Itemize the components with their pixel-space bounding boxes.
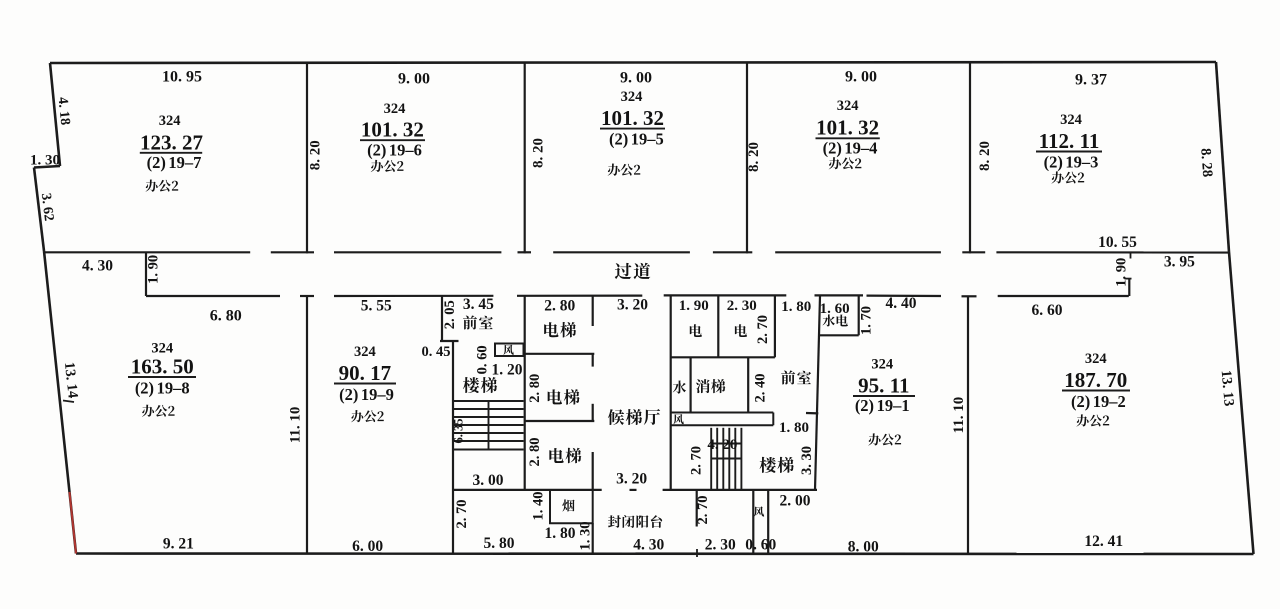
svg-text:9. 37: 9. 37 [1075,71,1107,88]
svg-text:2. 70: 2. 70 [755,315,771,344]
svg-text:324: 324 [621,89,643,105]
svg-text:3. 30: 3. 30 [799,446,815,475]
svg-text:(2)19–1: (2)19–1 [855,396,910,415]
svg-text:2. 80: 2. 80 [544,298,575,315]
svg-text:1. 20: 1. 20 [492,362,523,379]
svg-text:1. 70: 1. 70 [859,306,875,335]
svg-text:9. 00: 9. 00 [620,69,652,86]
svg-text:2. 40: 2. 40 [752,374,768,403]
svg-text:2. 70: 2. 70 [689,446,705,475]
svg-text:(2)19–7: (2)19–7 [147,153,202,172]
svg-text:90. 17: 90. 17 [339,361,392,385]
svg-text:1. 80: 1. 80 [779,420,809,436]
svg-text:9. 00: 9. 00 [398,70,430,87]
svg-text:324: 324 [159,113,181,129]
svg-text:11. 10: 11. 10 [288,407,304,444]
svg-text:13. 13: 13. 13 [1218,369,1237,407]
svg-text:4. 30: 4. 30 [82,258,113,275]
svg-text:10. 55: 10. 55 [1098,234,1137,251]
svg-text:8. 20: 8. 20 [308,140,324,170]
svg-text:(2)19–4: (2)19–4 [823,138,878,157]
svg-text:6. 80: 6. 80 [210,308,242,325]
svg-text:(2)19–3: (2)19–3 [1044,152,1099,171]
svg-text:1. 80: 1. 80 [545,525,576,542]
svg-text:324: 324 [354,344,376,360]
svg-text:101. 32: 101. 32 [816,116,879,140]
svg-text:1. 60: 1. 60 [820,301,850,317]
svg-text:1. 90: 1. 90 [145,255,161,284]
svg-text:4. 40: 4. 40 [886,295,917,312]
svg-text:8. 20: 8. 20 [531,138,547,168]
svg-text:324: 324 [1060,112,1082,128]
svg-text:2. 80: 2. 80 [527,374,543,403]
svg-text:5. 80: 5. 80 [484,535,515,552]
svg-text:95. 11: 95. 11 [858,373,909,397]
svg-text:6. 35: 6. 35 [452,419,466,444]
svg-text:3. 45: 3. 45 [463,296,494,313]
svg-text:0. 45: 0. 45 [422,344,451,360]
svg-text:4. 18: 4. 18 [54,96,72,125]
svg-text:9. 00: 9. 00 [845,69,877,86]
svg-text:(2)19–9: (2)19–9 [339,385,394,404]
svg-text:(2)19–8: (2)19–8 [135,379,190,398]
svg-text:6. 60: 6. 60 [1032,302,1063,319]
svg-text:3. 95: 3. 95 [1164,253,1195,270]
svg-text:2. 80: 2. 80 [527,438,543,467]
svg-text:6. 00: 6. 00 [352,538,383,555]
svg-text:1. 80: 1. 80 [781,299,811,315]
svg-text:1. 90: 1. 90 [679,298,709,314]
svg-text:101. 32: 101. 32 [361,118,424,142]
svg-text:2. 05: 2. 05 [442,300,458,329]
svg-text:1. 40: 1. 40 [531,492,547,521]
svg-text:11. 10: 11. 10 [951,397,967,434]
svg-text:8. 00: 8. 00 [848,539,879,556]
svg-text:0. 60: 0. 60 [475,345,491,374]
svg-text:3. 20: 3. 20 [617,297,648,314]
svg-text:324: 324 [871,357,893,373]
svg-text:3. 00: 3. 00 [473,472,504,489]
svg-text:9. 21: 9. 21 [163,535,194,552]
svg-text:1. 90: 1. 90 [1114,258,1130,287]
svg-text:0. 60: 0. 60 [745,537,776,554]
svg-text:4. 30: 4. 30 [633,537,664,554]
svg-text:5. 55: 5. 55 [361,298,392,315]
svg-text:163. 50: 163. 50 [131,355,194,379]
svg-text:324: 324 [837,98,859,114]
svg-text:2. 00: 2. 00 [780,493,811,510]
svg-text:187. 70: 187. 70 [1064,368,1127,392]
svg-text:(2)19–5: (2)19–5 [609,130,664,149]
svg-text:1. 30: 1. 30 [30,153,60,169]
svg-text:12. 41: 12. 41 [1084,533,1123,550]
svg-text:2. 70: 2. 70 [454,500,470,529]
svg-text:10. 95: 10. 95 [162,68,202,85]
svg-text:101. 32: 101. 32 [601,106,664,130]
svg-text:3. 20: 3. 20 [616,471,647,488]
svg-text:4. 20: 4. 20 [707,437,737,453]
svg-text:2. 30: 2. 30 [705,537,736,554]
svg-text:2. 70: 2. 70 [695,496,711,525]
svg-text:(2)19–6: (2)19–6 [367,140,422,159]
svg-text:8. 28: 8. 28 [1197,148,1215,178]
svg-text:112. 11: 112. 11 [1039,129,1100,153]
svg-text:324: 324 [1085,351,1107,367]
svg-text:2. 30: 2. 30 [727,298,757,314]
svg-text:324: 324 [384,101,406,117]
svg-text:(2)19–2: (2)19–2 [1071,392,1126,411]
svg-text:1. 30: 1. 30 [577,522,593,551]
svg-text:8. 20: 8. 20 [977,141,993,171]
svg-text:8. 20: 8. 20 [746,142,762,172]
svg-text:123. 27: 123. 27 [140,131,203,155]
